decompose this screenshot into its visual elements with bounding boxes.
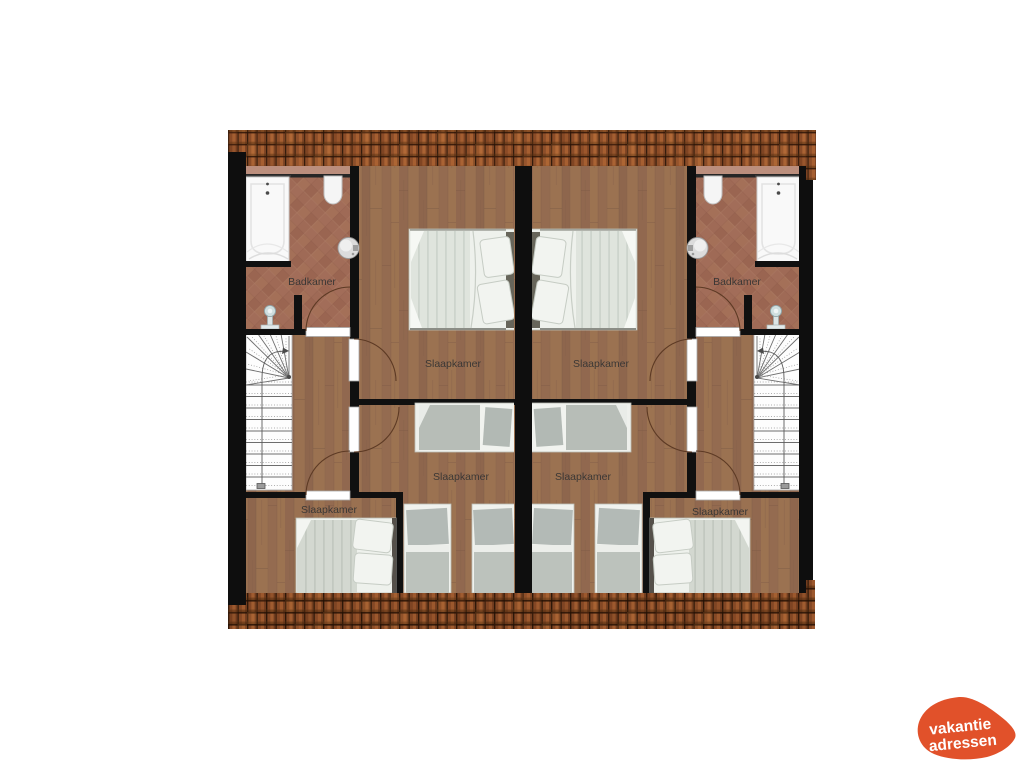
- svg-text:Badkamer: Badkamer: [288, 276, 336, 288]
- svg-text:Badkamer: Badkamer: [713, 276, 761, 288]
- svg-text:Slaapkamer: Slaapkamer: [433, 471, 490, 483]
- svg-text:Slaapkamer: Slaapkamer: [555, 471, 612, 483]
- svg-text:Slaapkamer: Slaapkamer: [301, 504, 358, 516]
- svg-text:Slaapkamer: Slaapkamer: [425, 358, 482, 370]
- svg-text:Slaapkamer: Slaapkamer: [692, 506, 749, 518]
- svg-text:Slaapkamer: Slaapkamer: [573, 358, 630, 370]
